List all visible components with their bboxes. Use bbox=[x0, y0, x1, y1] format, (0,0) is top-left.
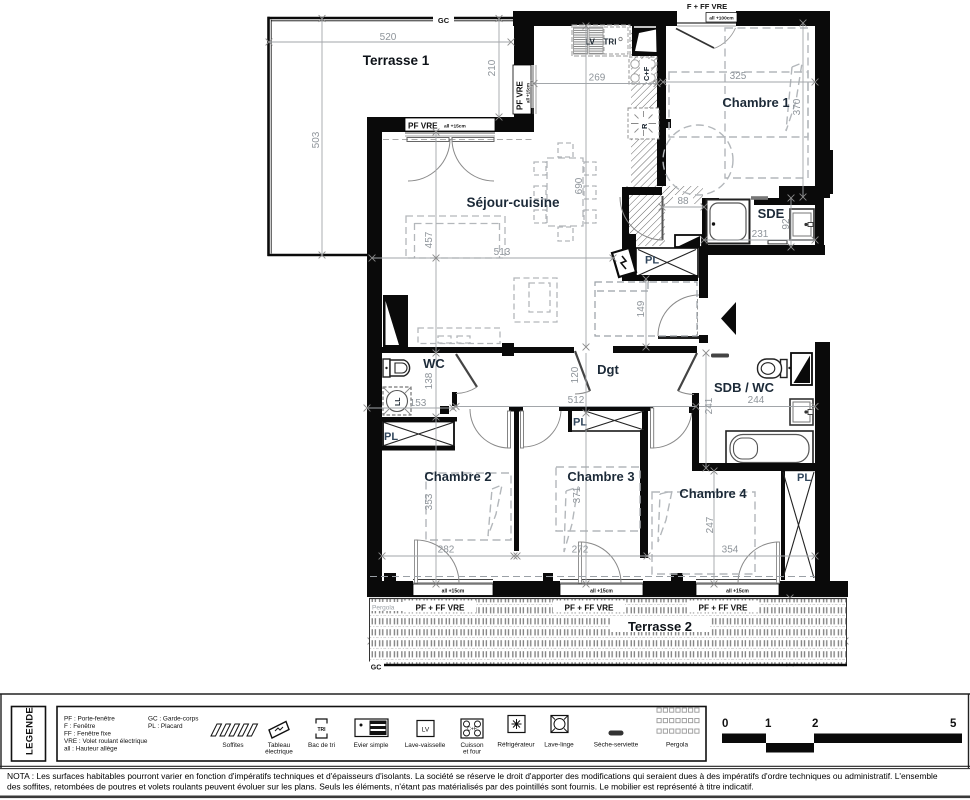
svg-text:TRI: TRI bbox=[604, 38, 617, 47]
svg-text:353: 353 bbox=[424, 493, 435, 510]
svg-text:PF + FF VRE: PF + FF VRE bbox=[699, 604, 748, 613]
svg-text:SDB / WC: SDB / WC bbox=[714, 380, 775, 395]
svg-text:FF : Fenêtre fixe: FF : Fenêtre fixe bbox=[64, 731, 111, 738]
svg-text:513: 513 bbox=[494, 247, 511, 258]
svg-text:PF + FF VRE: PF + FF VRE bbox=[416, 604, 465, 613]
svg-text:Séjour-cuisine: Séjour-cuisine bbox=[466, 195, 560, 210]
svg-text:Bac de tri: Bac de tri bbox=[308, 742, 335, 749]
svg-text:all : Hauteur allège: all : Hauteur allège bbox=[64, 746, 118, 753]
svg-text:all +15cm: all +15cm bbox=[590, 588, 613, 594]
svg-text:690: 690 bbox=[574, 177, 585, 194]
svg-text:électrique: électrique bbox=[265, 749, 293, 756]
svg-text:241: 241 bbox=[704, 397, 715, 414]
svg-text:PF : Porte-fenêtre: PF : Porte-fenêtre bbox=[64, 716, 115, 723]
svg-text:SDE: SDE bbox=[758, 206, 785, 221]
svg-text:et four: et four bbox=[463, 749, 482, 756]
svg-text:Chambre 4: Chambre 4 bbox=[679, 486, 747, 501]
svg-text:Pergola: Pergola bbox=[666, 742, 688, 749]
svg-text:PL: PL bbox=[573, 417, 587, 429]
svg-text:TRI: TRI bbox=[317, 727, 326, 733]
svg-text:149: 149 bbox=[636, 300, 647, 317]
svg-text:Chambre 3: Chambre 3 bbox=[567, 469, 634, 484]
svg-text:Chambre 2: Chambre 2 bbox=[424, 469, 491, 484]
svg-text:F : Fenêtre: F : Fenêtre bbox=[64, 723, 96, 730]
svg-text:PF VRE: PF VRE bbox=[516, 80, 525, 110]
svg-text:272: 272 bbox=[572, 545, 589, 556]
svg-text:325: 325 bbox=[730, 71, 747, 82]
svg-text:C+F: C+F bbox=[467, 727, 477, 733]
svg-text:PL : Placard: PL : Placard bbox=[148, 723, 183, 730]
svg-text:Terrasse 1: Terrasse 1 bbox=[363, 53, 430, 68]
svg-text:NOTA : Les surfaces habitables: NOTA : Les surfaces habitables pourront … bbox=[7, 771, 938, 781]
svg-text:2: 2 bbox=[812, 718, 818, 730]
svg-text:all +15cm: all +15cm bbox=[442, 588, 465, 594]
svg-text:269: 269 bbox=[589, 73, 606, 84]
svg-text:512: 512 bbox=[568, 395, 585, 406]
svg-text:PL: PL bbox=[384, 431, 398, 443]
svg-text:LV: LV bbox=[422, 727, 430, 734]
svg-text:F + FF VRE: F + FF VRE bbox=[687, 2, 727, 11]
svg-text:LV: LV bbox=[585, 38, 595, 47]
svg-text:120: 120 bbox=[570, 366, 581, 383]
svg-text:282: 282 bbox=[438, 545, 455, 556]
svg-text:PL: PL bbox=[645, 255, 659, 267]
svg-text:370: 370 bbox=[792, 98, 803, 115]
svg-text:des soffites, retombées de pou: des soffites, retombées de poutres et vo… bbox=[7, 782, 754, 792]
svg-text:PL: PL bbox=[797, 472, 811, 484]
svg-text:R: R bbox=[640, 123, 649, 129]
svg-text:Sèche-serviette: Sèche-serviette bbox=[594, 742, 639, 749]
svg-text:Dgt: Dgt bbox=[597, 362, 619, 377]
svg-text:all +15cm: all +15cm bbox=[444, 124, 466, 130]
svg-text:Soffites: Soffites bbox=[222, 742, 243, 749]
svg-text:Chambre 1: Chambre 1 bbox=[722, 95, 789, 110]
svg-text:Réfrigérateur: Réfrigérateur bbox=[497, 742, 535, 749]
svg-text:520: 520 bbox=[380, 32, 397, 43]
svg-text:0: 0 bbox=[722, 718, 728, 730]
svg-text:WC: WC bbox=[423, 356, 445, 371]
svg-text:1: 1 bbox=[765, 718, 772, 730]
svg-text:231: 231 bbox=[752, 229, 769, 240]
svg-text:210: 210 bbox=[487, 59, 498, 76]
svg-text:88: 88 bbox=[677, 196, 689, 207]
svg-text:457: 457 bbox=[424, 231, 435, 248]
svg-text:Evier simple: Evier simple bbox=[354, 742, 389, 749]
svg-text:GC: GC bbox=[438, 16, 450, 25]
svg-text:354: 354 bbox=[722, 545, 739, 556]
svg-text:153: 153 bbox=[410, 398, 427, 409]
svg-text:all +100cm: all +100cm bbox=[709, 16, 733, 22]
svg-text:244: 244 bbox=[748, 395, 765, 406]
svg-text:PF + FF VRE: PF + FF VRE bbox=[565, 604, 614, 613]
svg-text:371: 371 bbox=[572, 486, 583, 503]
svg-text:247: 247 bbox=[705, 516, 716, 533]
svg-text:all +15cm: all +15cm bbox=[526, 83, 531, 103]
svg-text:5: 5 bbox=[950, 718, 957, 730]
svg-text:LEGENDE: LEGENDE bbox=[25, 707, 36, 755]
svg-text:Lave-linge: Lave-linge bbox=[544, 742, 574, 749]
svg-text:Pergola: Pergola bbox=[372, 605, 395, 612]
svg-text:Lave-vaisselle: Lave-vaisselle bbox=[405, 742, 446, 749]
svg-text:C+F: C+F bbox=[642, 66, 651, 81]
svg-text:GC : Garde-corps: GC : Garde-corps bbox=[148, 716, 198, 723]
svg-text:138: 138 bbox=[424, 372, 435, 389]
svg-text:GC: GC bbox=[371, 664, 382, 671]
svg-text:Terrasse 2: Terrasse 2 bbox=[628, 619, 692, 634]
svg-text:LL: LL bbox=[395, 397, 402, 406]
svg-text:503: 503 bbox=[311, 131, 322, 148]
svg-text:VRE : Volet roulant électrique: VRE : Volet roulant électrique bbox=[64, 738, 148, 745]
svg-text:all +15cm: all +15cm bbox=[726, 588, 749, 594]
